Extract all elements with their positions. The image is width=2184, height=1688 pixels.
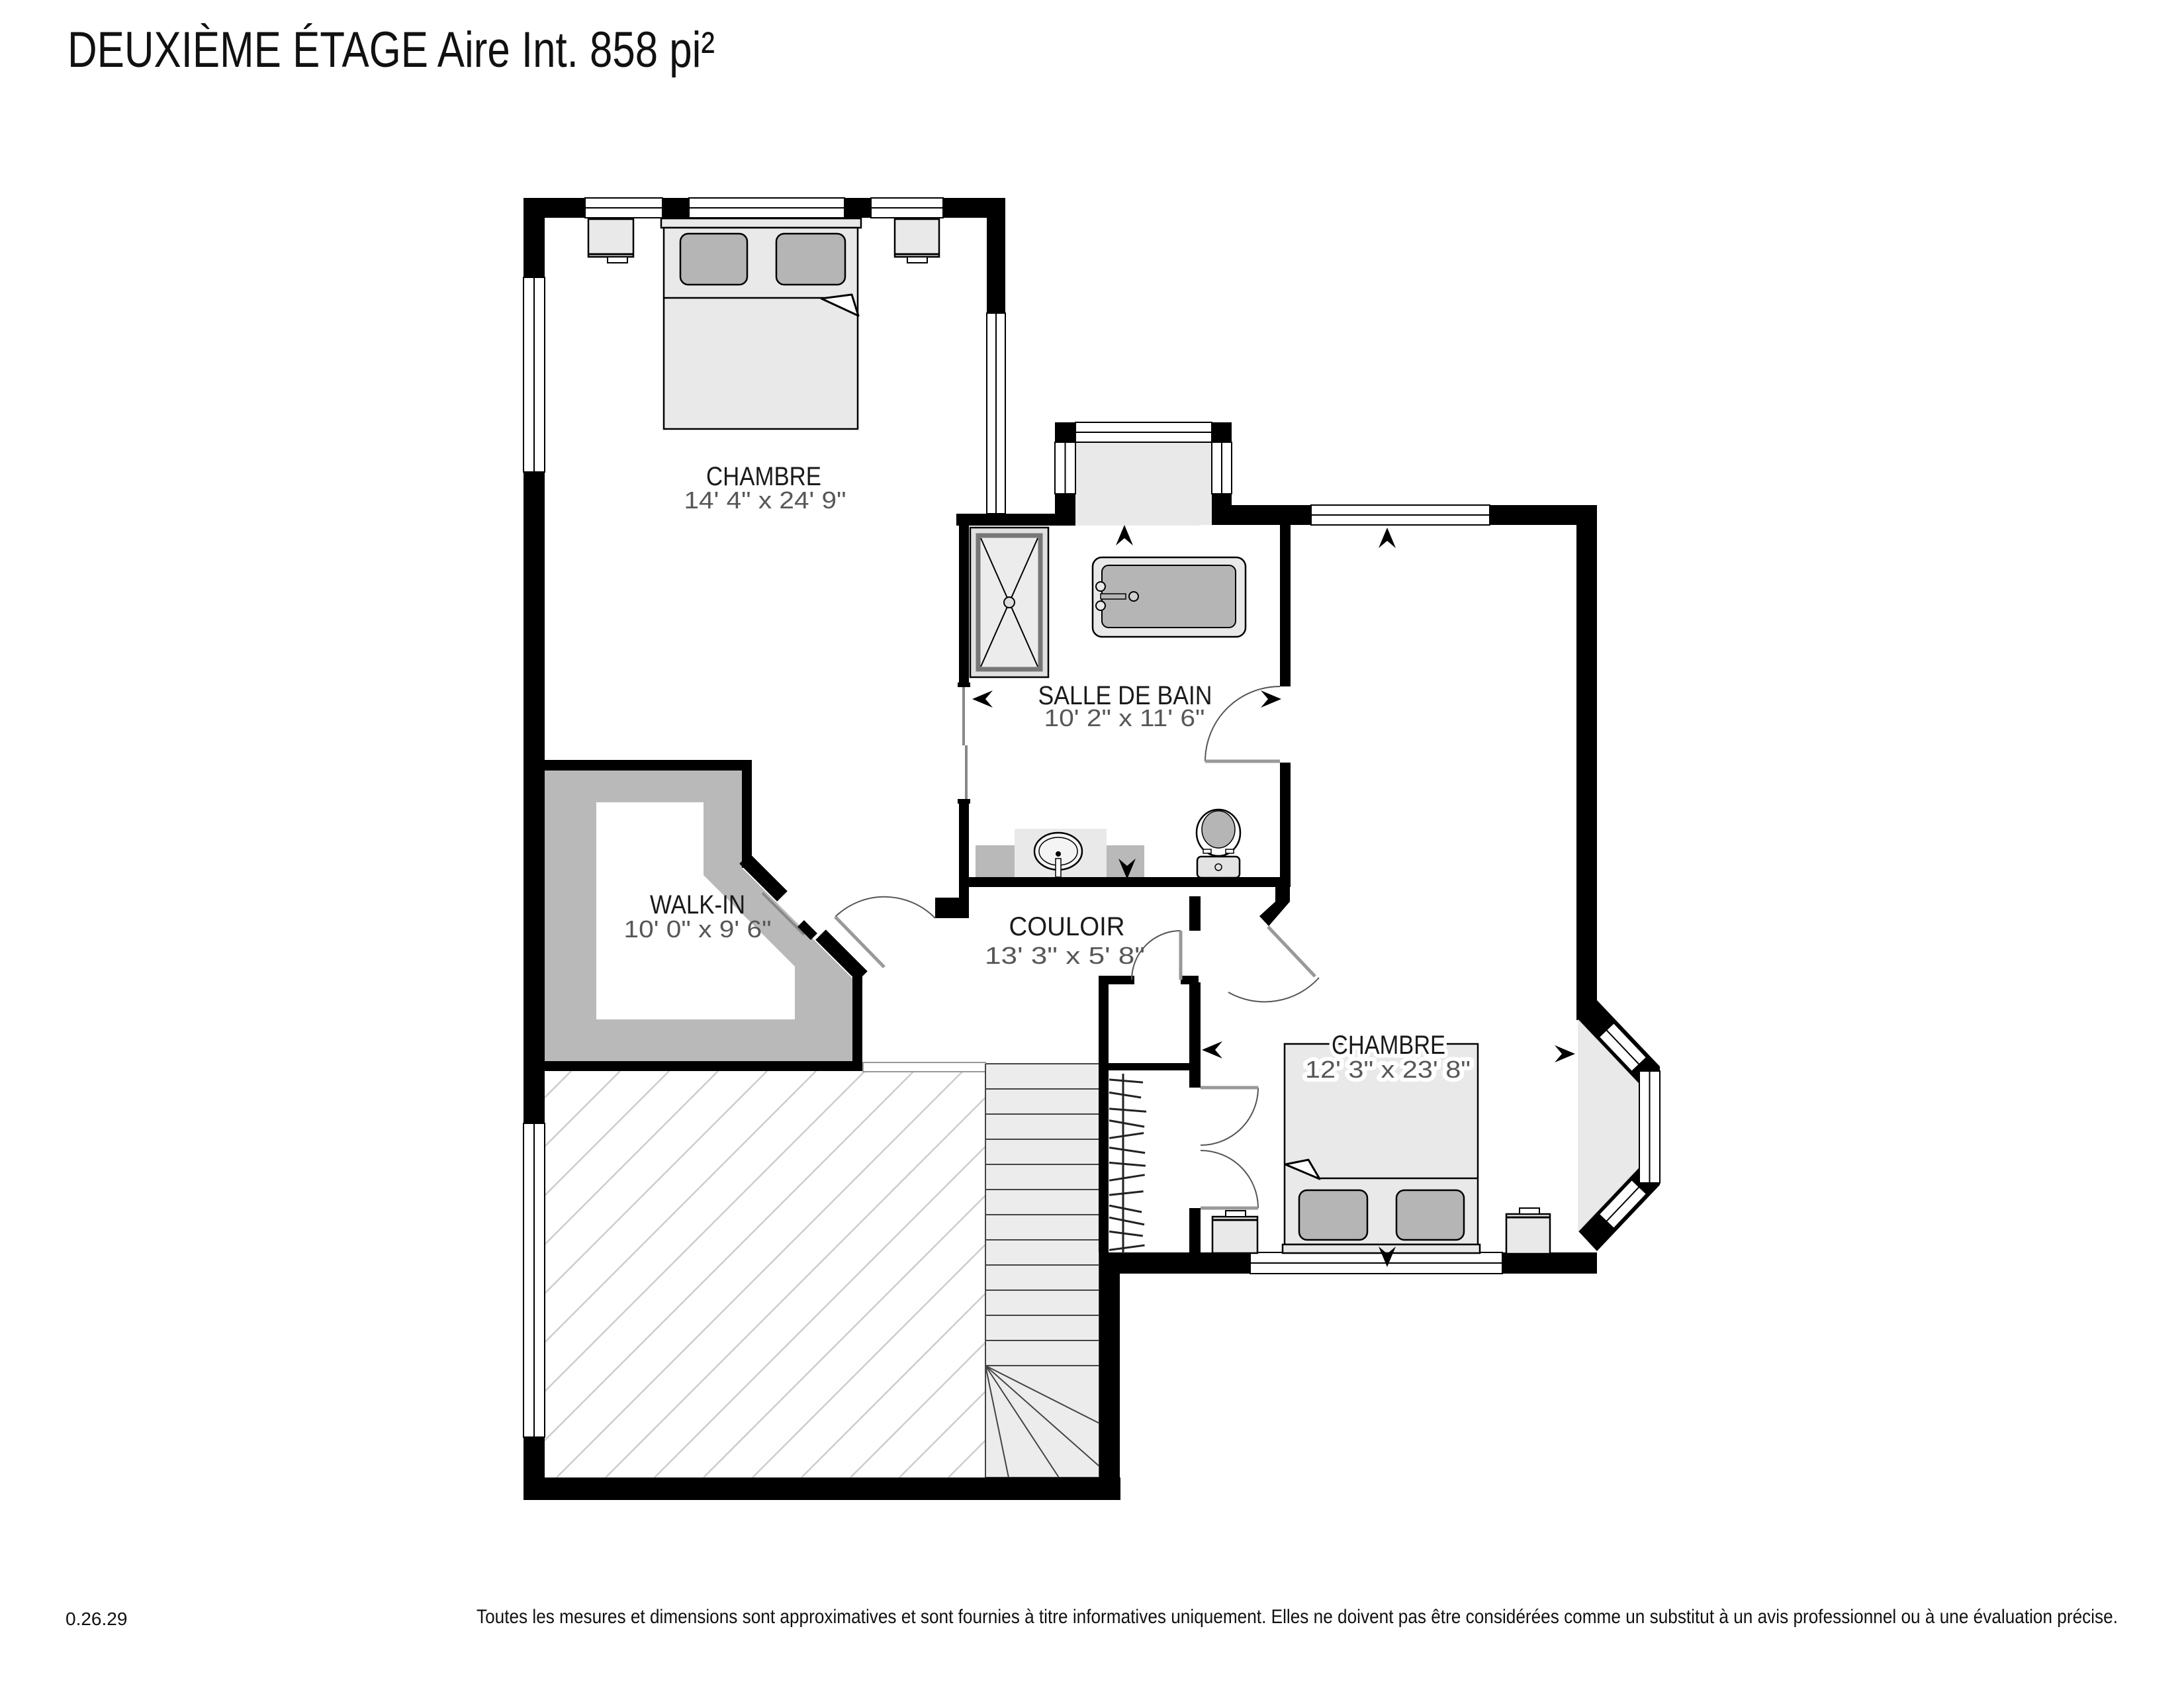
svg-text:0.26.29: 0.26.29 — [66, 1609, 127, 1629]
svg-text:DEUXIÈME ÉTAGE Aire Int. 858 p: DEUXIÈME ÉTAGE Aire Int. 858 pi² — [68, 22, 715, 78]
svg-text:Toutes les mesures et dimensio: Toutes les mesures et dimensions sont ap… — [477, 1606, 2118, 1628]
svg-text:12' 3" x 23' 8": 12' 3" x 23' 8" — [1305, 1056, 1471, 1083]
svg-text:14' 4" x 24' 9": 14' 4" x 24' 9" — [684, 487, 846, 514]
svg-text:COULOIR: COULOIR — [1009, 912, 1125, 941]
svg-text:13' 3" x 5' 8": 13' 3" x 5' 8" — [985, 942, 1145, 969]
svg-text:10' 0" x 9' 6": 10' 0" x 9' 6" — [624, 915, 772, 943]
svg-text:10' 2" x 11' 6": 10' 2" x 11' 6" — [1044, 704, 1205, 731]
